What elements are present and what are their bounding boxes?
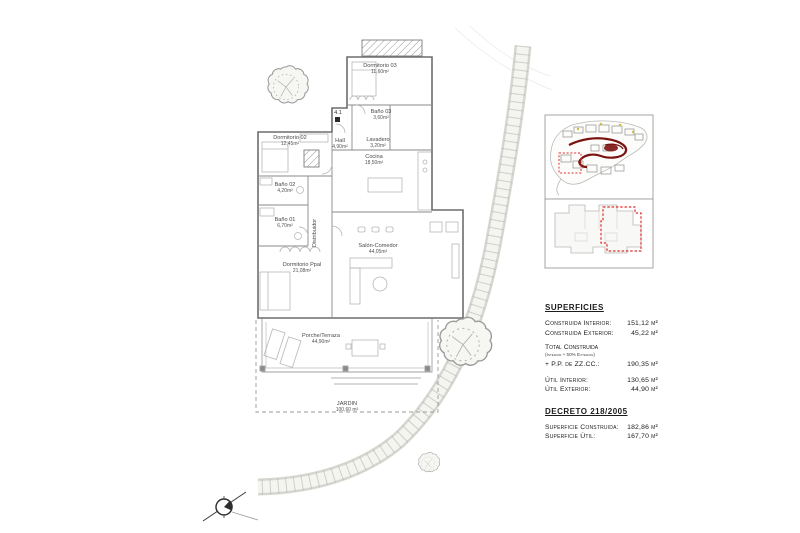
room-area-bano-03: 3,60m²: [373, 115, 389, 121]
surface-row: Superficie Construida: 182,86 m²: [545, 423, 658, 433]
balcony-hatch: [304, 40, 422, 167]
floor-plan-svg: 4.1 Dormitorio 03 11,60m² Baño 03 3,60m²…: [0, 0, 800, 533]
surface-row-label: Construida Interior:: [545, 319, 612, 329]
furniture-sketch: [260, 62, 459, 367]
room-area-cocina: 18,50m²: [365, 160, 384, 166]
tree-icon: [440, 317, 492, 365]
surface-row: Construida Exterior: 45,22 m²: [545, 329, 658, 339]
room-area-jardin: 100,60 m²: [336, 407, 359, 413]
surface-row-label: Superficie Útil:: [545, 432, 595, 442]
surface-row: Útil Interior: 130,65 m²: [545, 376, 658, 386]
room-area-salon-comedor: 44,05m²: [369, 249, 388, 255]
surface-row: Superficie Útil: 167,70 m²: [545, 432, 658, 442]
contour-lines: [455, 26, 552, 90]
entry-marker: 4.1: [334, 110, 342, 122]
room-area-lavadero: 3,20m²: [370, 143, 386, 149]
surface-row-value: 190,35 m²: [627, 360, 658, 370]
key-plan-unit: [545, 199, 653, 268]
surfaces-title: SUPERFICIES: [545, 303, 658, 312]
drawing-sheet: 4.1 Dormitorio 03 11,60m² Baño 03 3,60m²…: [0, 0, 800, 533]
total-construida-note: (Interior + 50% Exterior): [545, 352, 658, 358]
room-area-dormitorio-ppal: 21,08m²: [293, 268, 312, 274]
decreto-title: DECRETO 218/2005: [545, 407, 658, 416]
surface-row-label: Útil Interior:: [545, 376, 588, 386]
surface-row-value: 44,90 m²: [631, 385, 658, 395]
room-label-distribuidor: Distribuidor: [312, 219, 318, 247]
surface-row-value: 182,86 m²: [627, 423, 658, 433]
room-area-bano-02: 4,20m²: [277, 188, 293, 194]
room-area-bano-01: 6,70m²: [277, 223, 293, 229]
surface-row-value: 167,70 m²: [627, 432, 658, 442]
room-area-dormitorio-02: 12,45m²: [281, 141, 300, 147]
surface-row: Útil Exterior: 44,90 m²: [545, 385, 658, 395]
entry-marker-label: 4.1: [334, 110, 342, 116]
surface-row: + P.P. de ZZ.CC.: 190,35 m²: [545, 360, 658, 370]
surface-row-label: + P.P. de ZZ.CC.:: [545, 360, 600, 370]
north-arrow-icon: [203, 492, 258, 521]
room-area-dormitorio-03: 11,60m²: [371, 69, 389, 75]
tree-icon: [419, 452, 440, 472]
surface-row-label: Útil Exterior:: [545, 385, 590, 395]
surface-row-label: Construida Exterior:: [545, 329, 614, 339]
porch-outline: [260, 318, 432, 384]
room-area-hall: 4,90m²: [332, 144, 348, 150]
surface-row-label: Superficie Construida:: [545, 423, 619, 433]
surface-row-value: 130,65 m²: [627, 376, 658, 386]
tree-icon: [268, 66, 308, 103]
surface-row: Construida Interior: 151,12 m²: [545, 319, 658, 329]
surface-row-value: 151,12 m²: [627, 319, 658, 329]
room-area-porche-terraza: 44,90m²: [312, 339, 331, 345]
surface-row-value: 45,22 m²: [631, 329, 658, 339]
surfaces-table: SUPERFICIES Construida Interior: 151,12 …: [545, 303, 658, 442]
key-plan-site: [545, 115, 653, 199]
total-construida-label: Total Construida: [545, 344, 658, 352]
